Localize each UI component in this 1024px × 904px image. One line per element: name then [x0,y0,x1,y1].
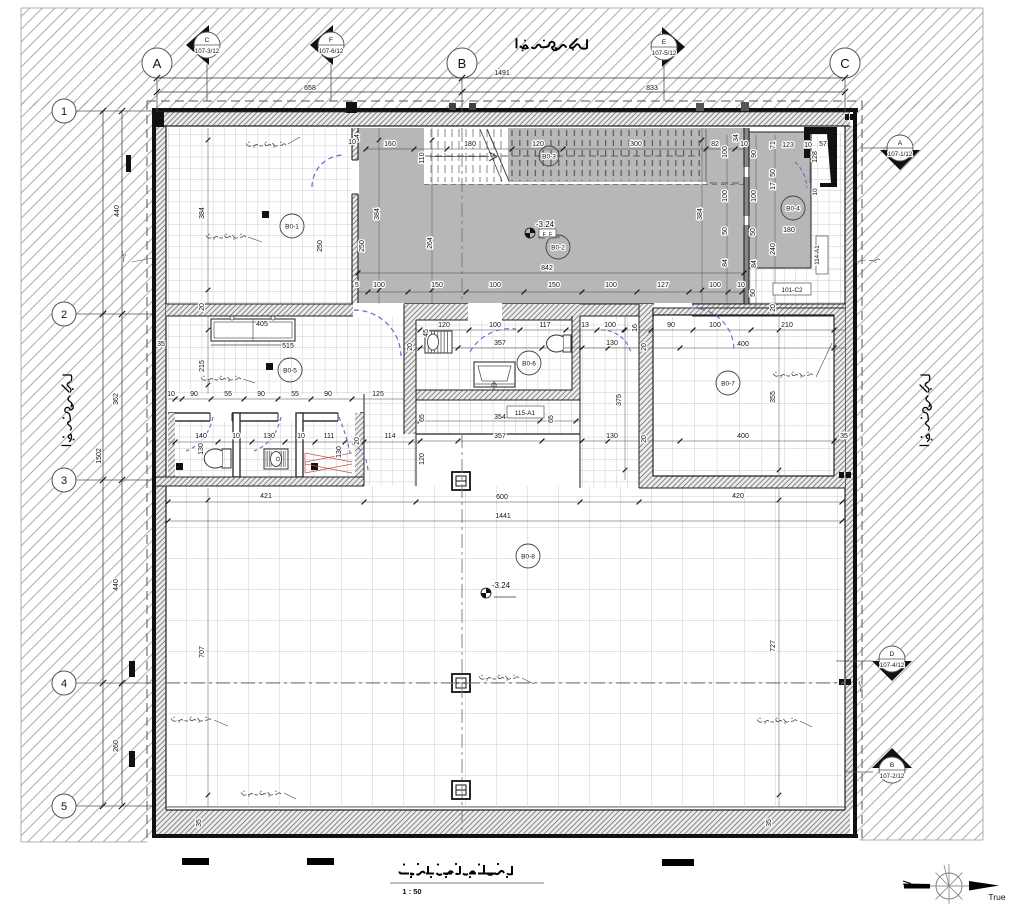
svg-text:120: 120 [438,322,450,329]
svg-text:110: 110 [419,152,426,163]
svg-text:405: 405 [256,321,268,328]
svg-text:-3.24: -3.24 [536,220,555,229]
svg-text:125: 125 [372,391,384,398]
svg-text:50: 50 [750,289,757,297]
svg-text:100: 100 [489,282,501,289]
svg-text:215: 215 [199,360,206,372]
svg-text:90: 90 [257,391,265,398]
svg-text:250: 250 [317,240,324,252]
svg-text:A: A [153,56,162,71]
svg-text:35: 35 [157,341,165,348]
svg-text:250: 250 [359,240,366,252]
svg-text:90: 90 [324,391,332,398]
svg-text:130: 130 [336,446,343,458]
svg-text:B0-5: B0-5 [283,368,297,375]
svg-text:13: 13 [581,322,589,329]
svg-text:10: 10 [297,433,305,440]
svg-text:65: 65 [548,415,555,423]
svg-text:10: 10 [737,282,745,289]
svg-text:B0-7: B0-7 [721,381,735,388]
svg-text:50: 50 [770,169,777,177]
svg-text:100: 100 [709,282,721,289]
svg-text:B: B [458,56,467,71]
svg-text:354: 354 [494,414,506,421]
svg-text:362: 362 [113,393,120,405]
svg-text:1441: 1441 [495,513,511,520]
svg-text:35: 35 [840,433,848,440]
svg-text:515: 515 [282,343,294,350]
svg-text:384: 384 [697,208,704,220]
svg-text:600: 600 [496,494,508,501]
svg-text:130: 130 [198,443,205,455]
svg-text:90: 90 [190,391,198,398]
svg-text:35: 35 [766,819,773,827]
svg-text:True: True [988,892,1005,902]
svg-text:55: 55 [291,391,299,398]
svg-text:400: 400 [737,433,749,440]
svg-text:440: 440 [113,579,120,591]
svg-text:F: F [329,37,333,44]
svg-text:1491: 1491 [494,70,510,77]
svg-text:90: 90 [667,322,675,329]
svg-text:B0-2: B0-2 [551,245,565,252]
svg-text:3: 3 [61,475,67,487]
svg-text:357: 357 [494,433,506,440]
svg-text:B0-1: B0-1 [285,224,299,231]
svg-text:240: 240 [770,243,777,255]
svg-text:707: 707 [199,646,206,658]
svg-text:2: 2 [61,309,67,321]
svg-text:20: 20 [354,437,361,445]
svg-text:C: C [840,56,849,71]
svg-text:45: 45 [423,329,430,337]
svg-text:100: 100 [709,322,721,329]
svg-text:100: 100 [489,322,501,329]
svg-text:-3.24: -3.24 [492,581,511,590]
svg-text:127: 127 [657,282,669,289]
svg-text:100: 100 [605,282,617,289]
svg-text:357: 357 [494,340,506,347]
svg-text:10: 10 [804,142,812,149]
svg-text:5: 5 [355,282,359,289]
svg-text:1502: 1502 [96,448,103,464]
svg-text:300: 300 [630,141,642,148]
svg-text:400: 400 [737,341,749,348]
svg-text:150: 150 [431,282,443,289]
svg-text:260: 260 [113,740,120,752]
svg-text:210: 210 [781,322,793,329]
svg-text:50: 50 [722,227,729,235]
svg-text:B0-8: B0-8 [521,554,535,561]
svg-text:4: 4 [61,678,67,690]
svg-text:100: 100 [722,190,729,202]
svg-text:10: 10 [812,188,819,196]
svg-text:111: 111 [324,433,335,440]
svg-text:20: 20 [641,435,648,443]
svg-text:16: 16 [632,324,639,332]
svg-text:150: 150 [548,282,560,289]
svg-text:20: 20 [770,304,777,312]
svg-text:100: 100 [604,322,616,329]
svg-text:833: 833 [646,85,658,92]
svg-text:180: 180 [464,141,476,148]
svg-text:421: 421 [260,493,272,500]
svg-text:82: 82 [711,141,719,148]
svg-text:35: 35 [196,819,203,827]
svg-text:D: D [890,651,895,658]
svg-text:120: 120 [532,141,544,148]
svg-text:20: 20 [407,343,414,351]
svg-text:120: 120 [419,453,426,465]
svg-text:107-1/12: 107-1/12 [888,151,913,158]
svg-text:115-A1: 115-A1 [515,410,536,417]
svg-text:B0-3: B0-3 [542,154,556,161]
svg-text:10: 10 [232,433,240,440]
svg-text:10: 10 [167,391,175,398]
svg-text:384: 384 [374,208,381,220]
svg-text:84: 84 [722,259,729,267]
svg-text:1: 1 [61,106,67,118]
svg-text:160: 160 [384,141,396,148]
svg-text:71: 71 [770,141,777,149]
svg-text:130: 130 [606,340,618,347]
svg-text:10: 10 [740,141,748,148]
svg-text:20: 20 [199,303,206,311]
svg-text:140: 140 [195,433,207,440]
svg-text:E: E [662,39,667,46]
svg-text:107-4/12: 107-4/12 [880,662,905,669]
svg-text:375: 375 [616,394,623,406]
svg-text:B0-4: B0-4 [786,206,800,213]
svg-text:5: 5 [61,801,67,813]
svg-text:C: C [205,37,210,44]
svg-text:128: 128 [812,151,819,163]
svg-text:84: 84 [751,260,758,268]
svg-text:114-A1: 114-A1 [814,245,821,265]
svg-text:90: 90 [751,150,758,158]
svg-text:34: 34 [733,134,740,142]
svg-text:123: 123 [782,142,794,149]
svg-text:114: 114 [384,433,395,440]
svg-text:658: 658 [304,85,316,92]
svg-text:B: B [890,762,894,769]
svg-text:384: 384 [199,207,206,219]
svg-text:107-6/12: 107-6/12 [319,48,344,55]
svg-text:101-C2: 101-C2 [781,287,803,294]
svg-text:100: 100 [751,190,758,202]
svg-text:180: 180 [783,227,795,234]
svg-text:50: 50 [750,228,757,236]
svg-text:842: 842 [541,265,553,272]
svg-text:B0-6: B0-6 [522,361,536,368]
svg-text:65: 65 [419,414,426,422]
svg-text:727: 727 [770,640,777,652]
svg-text:A: A [898,140,903,147]
svg-text:55: 55 [224,391,232,398]
svg-text:117: 117 [539,322,550,329]
svg-text:107-3/12: 107-3/12 [195,48,220,55]
svg-text:440: 440 [114,205,121,217]
svg-text:107-5/12: 107-5/12 [652,50,677,57]
svg-text:355: 355 [770,391,777,403]
svg-text:20: 20 [641,343,648,351]
svg-text:17: 17 [770,182,777,190]
svg-text:420: 420 [732,493,744,500]
svg-text:130: 130 [263,433,275,440]
svg-text:107-2/12: 107-2/12 [880,773,905,780]
svg-text:57: 57 [819,141,827,148]
svg-text:264: 264 [427,237,434,249]
svg-text:100: 100 [373,282,385,289]
svg-text:130: 130 [606,433,618,440]
svg-text:10: 10 [348,139,356,146]
svg-text:100: 100 [722,146,729,158]
svg-text:1 : 50: 1 : 50 [402,887,421,896]
